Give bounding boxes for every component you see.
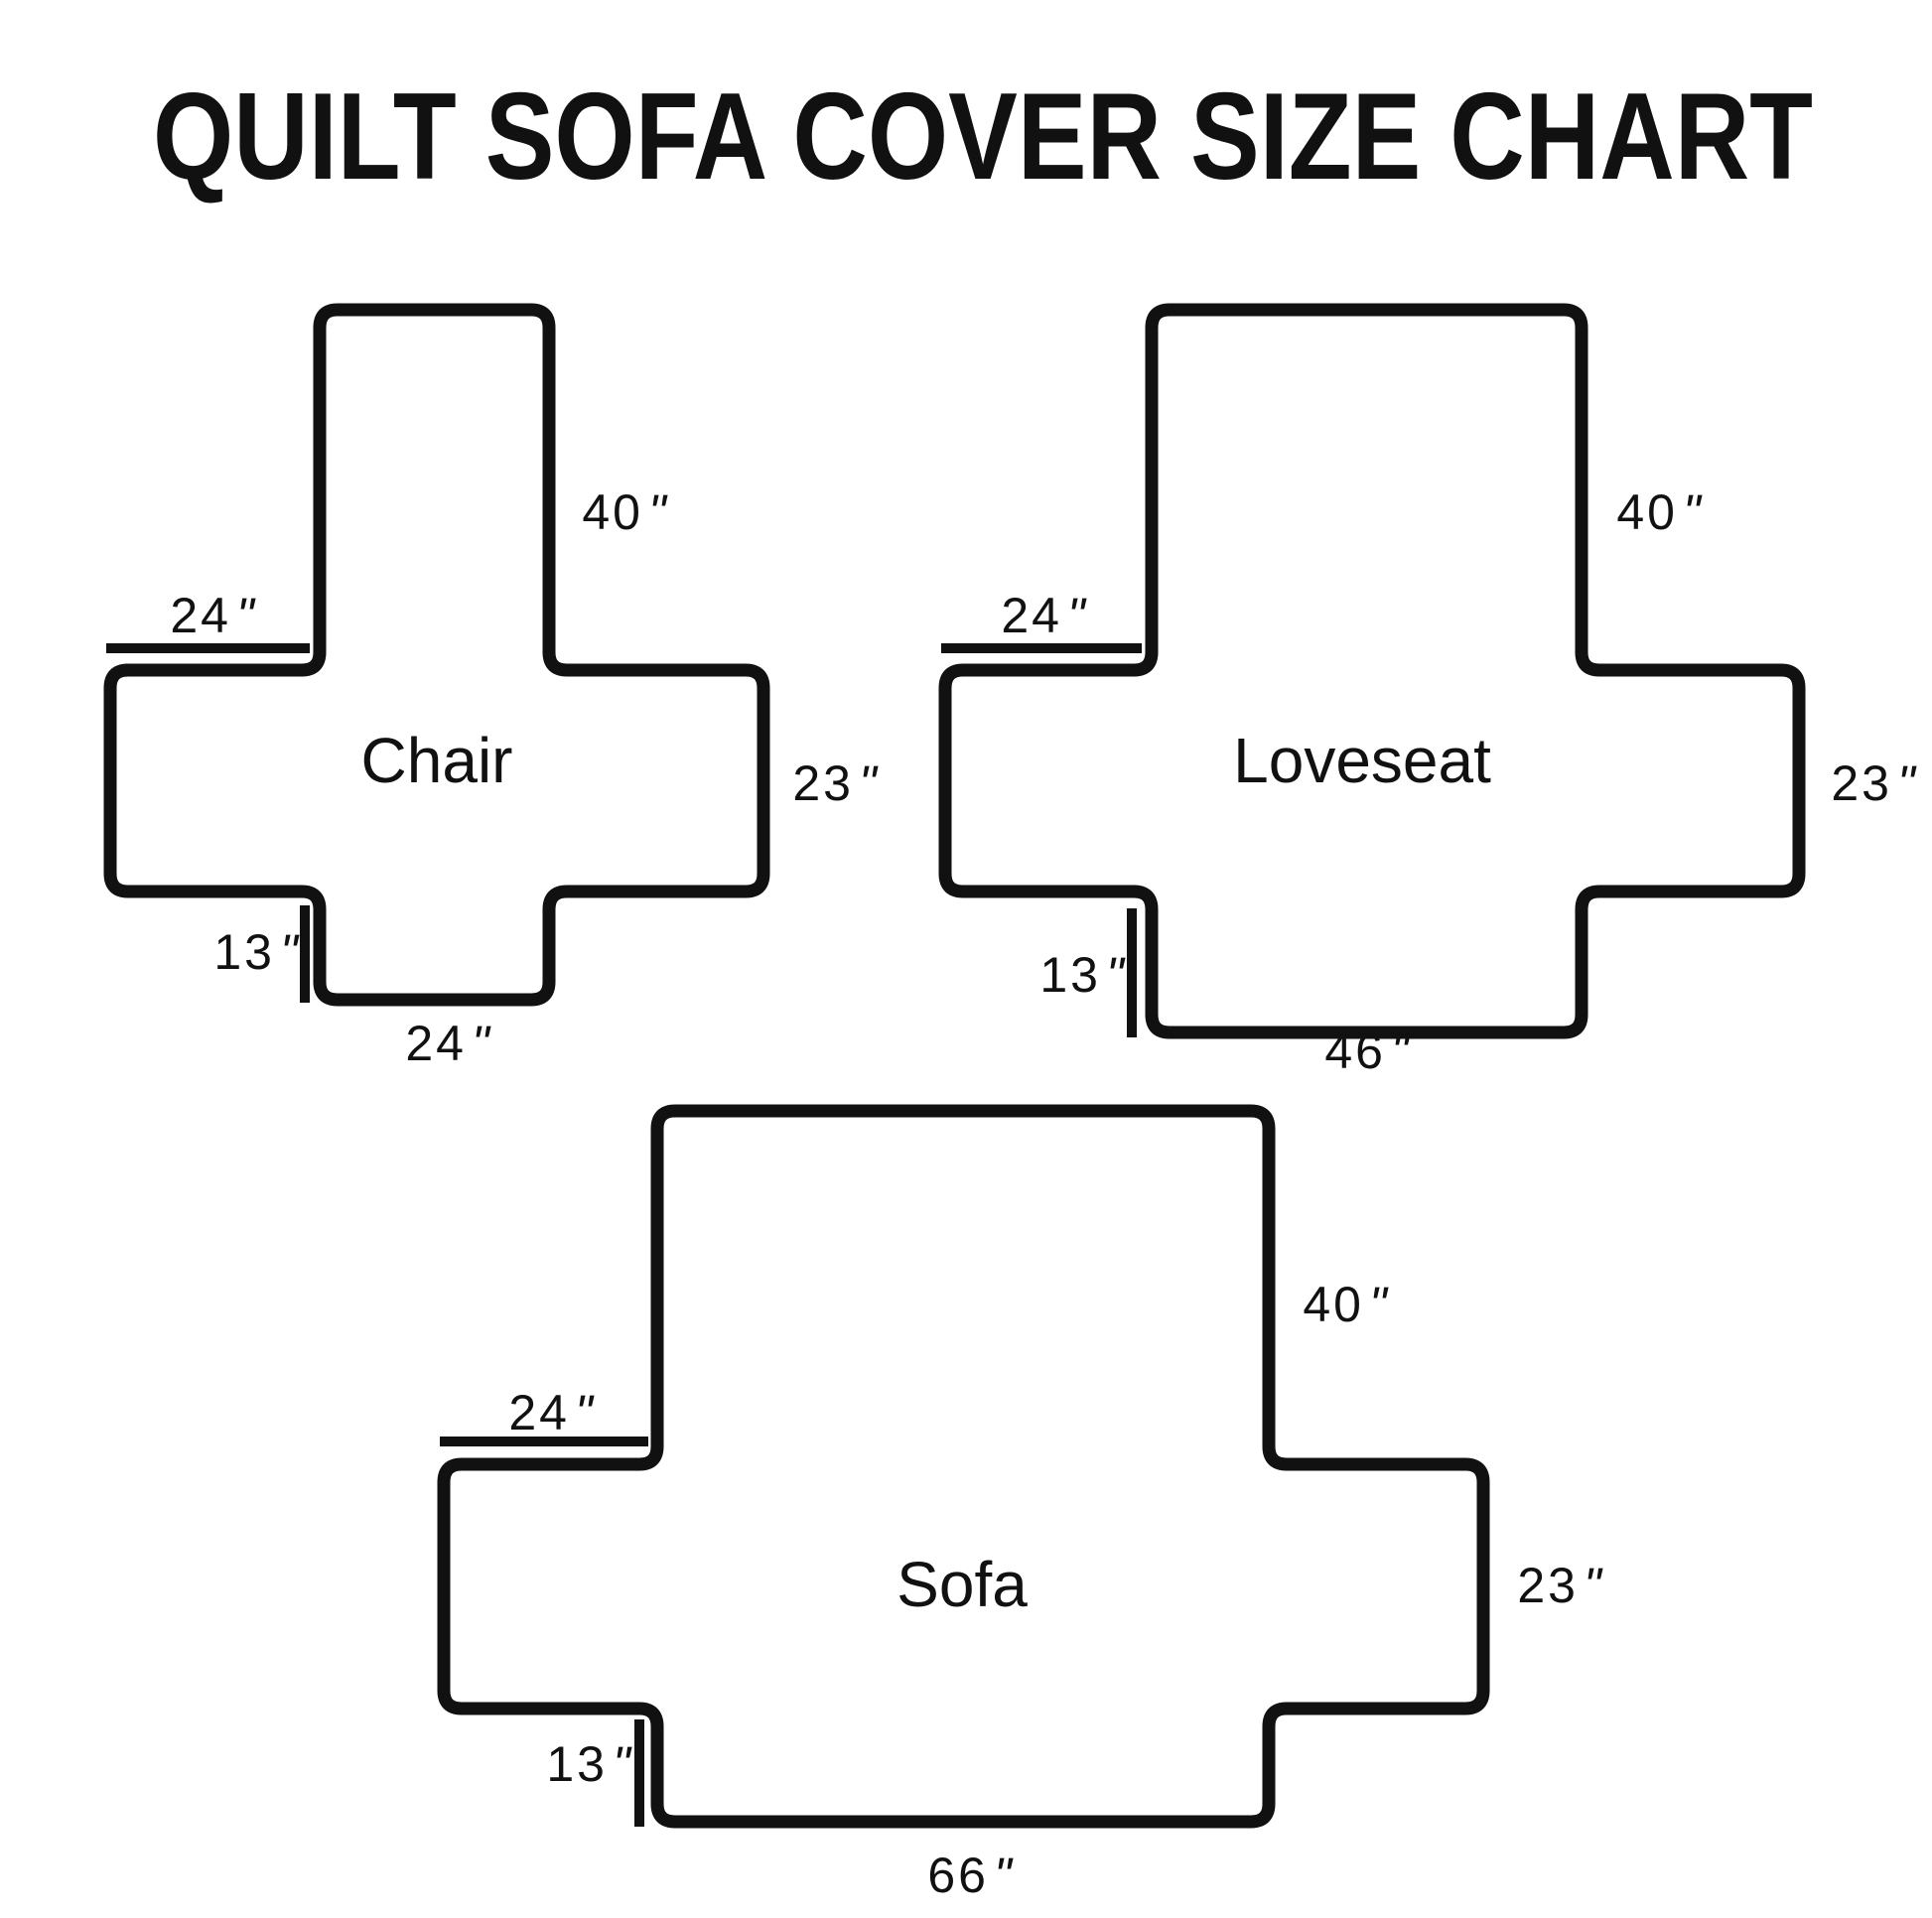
size-chart-page: QUILT SOFA COVER SIZE CHART 40" 24" Chai… [0, 0, 1932, 1918]
page-title: QUILT SOFA COVER SIZE CHART [153, 68, 1813, 205]
chair-front-drop-label: 13" [213, 924, 300, 980]
chair-diagram: 40" 24" Chair 23" 13" 24" [106, 310, 880, 1071]
loveseat-diagram: 40" 24" Loveseat 23" 13" 46" [941, 310, 1918, 1079]
sofa-diagram: 40" 24" Sofa 23" 13" 66" [440, 1111, 1604, 1903]
chair-name-label: Chair [361, 725, 513, 796]
loveseat-side-drop-label: 23" [1831, 755, 1917, 811]
loveseat-name-label: Loveseat [1233, 725, 1491, 796]
chair-seat-width-label: 24" [405, 1016, 491, 1071]
loveseat-arm-length-label: 24" [1001, 588, 1087, 643]
loveseat-front-drop-label: 13" [1039, 947, 1126, 1003]
chair-side-drop-label: 23" [792, 755, 879, 811]
sofa-seat-width-label: 66" [927, 1848, 1014, 1903]
chair-back-height-label: 40" [582, 484, 668, 540]
chair-arm-length-label: 24" [170, 588, 256, 643]
loveseat-seat-width-label: 46" [1324, 1024, 1411, 1079]
loveseat-back-height-label: 40" [1616, 484, 1703, 540]
size-chart-canvas: QUILT SOFA COVER SIZE CHART 40" 24" Chai… [0, 0, 1932, 1918]
sofa-arm-length-label: 24" [508, 1385, 595, 1440]
sofa-back-height-label: 40" [1303, 1277, 1389, 1332]
chair-cover-outline [110, 310, 763, 1000]
loveseat-cover-outline [945, 310, 1799, 1032]
sofa-front-drop-label: 13" [546, 1736, 632, 1792]
sofa-cover-outline [444, 1111, 1483, 1822]
sofa-name-label: Sofa [897, 1549, 1028, 1620]
sofa-side-drop-label: 23" [1517, 1558, 1603, 1613]
